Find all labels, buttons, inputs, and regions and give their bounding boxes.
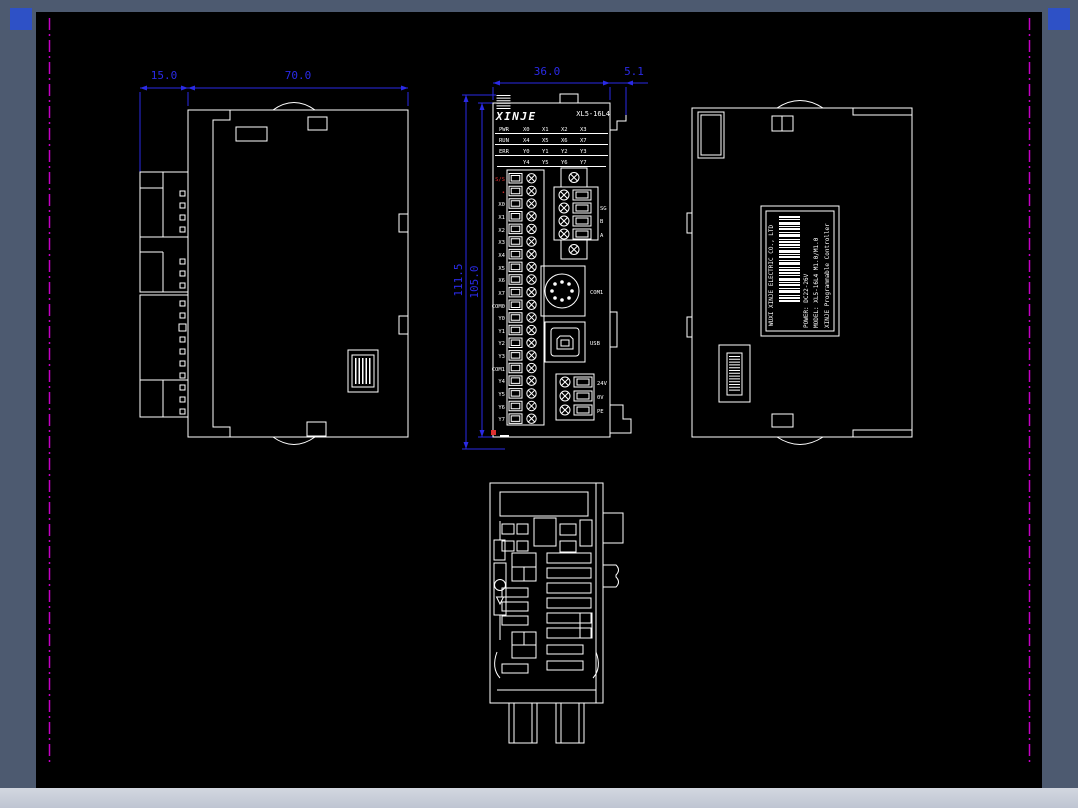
cad-viewer-window: 15.0 70.0 36.0 5.1 111.5 105.0: [0, 0, 1078, 808]
dim-70: 70.0: [285, 69, 312, 82]
terminal-row: [509, 401, 536, 411]
power-label: 24V: [597, 381, 608, 387]
dim-36: 36.0: [534, 65, 561, 78]
terminal-label: X4: [498, 253, 505, 259]
terminal-row: [509, 224, 536, 234]
right-side-view: XINJE Programmable Controller MODEL: XL5…: [687, 101, 912, 445]
led-label: Y0: [523, 149, 530, 155]
terminal-label: COM0: [492, 304, 505, 310]
led-label: X2: [561, 127, 568, 133]
mounting-feet: [509, 703, 584, 743]
usb-label: USB: [590, 341, 601, 347]
din-clip: [687, 213, 692, 233]
terminal-label: S/S: [495, 177, 505, 183]
terminal-label: X1: [498, 215, 505, 221]
terminal-label: X6: [498, 278, 505, 284]
terminal-label: X7: [498, 291, 505, 297]
terminal-row: [509, 212, 536, 222]
led-label: RUN: [499, 138, 509, 144]
nameplate-power: POWER: DC22-26V: [803, 273, 810, 328]
led-label: X5: [542, 138, 549, 144]
terminal-label: Y2: [498, 341, 505, 347]
din-clip: [687, 317, 692, 337]
terminal-label: X3: [498, 240, 505, 246]
led-label: PWR: [499, 127, 510, 133]
led-label: Y6: [561, 160, 568, 166]
terminal-label: Y7: [498, 417, 505, 423]
led-label: Y5: [542, 160, 549, 166]
din-clip: [603, 513, 623, 543]
terminal-row: [509, 363, 536, 373]
led-label: X1: [542, 127, 549, 133]
din-clip: [610, 312, 617, 347]
terminal-row: [509, 186, 536, 196]
expansion-port: [348, 350, 378, 392]
dimension-annotations: 15.0 70.0 36.0 5.1 111.5 105.0: [140, 65, 648, 449]
dim-5-1: 5.1: [624, 65, 644, 78]
terminal-row: [509, 237, 536, 247]
dim-15: 15.0: [151, 69, 178, 82]
sheet-border: [50, 18, 1030, 766]
led-label: Y4: [523, 160, 530, 166]
terminal-row: [509, 287, 536, 297]
power-label: 0V: [597, 395, 604, 401]
terminal-label: •: [502, 190, 505, 196]
terminal-row: [509, 174, 536, 184]
battery-cover: [698, 112, 724, 158]
terminal-row: [509, 300, 536, 310]
terminal-label: Y3: [498, 354, 505, 360]
warning-mark: [491, 430, 496, 435]
com1-port: COM1: [541, 266, 603, 316]
din-clip: [399, 214, 408, 232]
terminal-label: Y6: [498, 405, 505, 411]
nameplate-title: XINJE Programmable Controller: [824, 223, 831, 328]
side-terminal-blocks: [140, 172, 188, 417]
din-clip: [603, 565, 619, 587]
model-text: XL5-16L4: [576, 110, 610, 118]
led-label: X7: [580, 138, 587, 144]
terminal-label: Y1: [498, 329, 505, 335]
led-label: Y3: [580, 149, 587, 155]
terminal-row: [509, 351, 536, 361]
dim-105: 105.0: [468, 265, 481, 298]
rail-latch: [494, 521, 506, 640]
terminal-label: X5: [498, 266, 505, 272]
rs485-label: SG: [600, 206, 607, 212]
dim-111-5: 111.5: [452, 263, 465, 296]
nameplate-model: MODEL: XL5-16L4 M1.0/M1.0: [813, 237, 820, 328]
terminal-row: [509, 275, 536, 285]
rs485-terminal: SG B A: [554, 168, 607, 259]
terminal-label: Y0: [498, 316, 505, 322]
terminal-row: [509, 338, 536, 348]
bottom-view: [490, 483, 623, 743]
led-panel: PWR X0 X1 X2 X3 RUN X4 X5 X6 X7 ERR Y0 Y…: [495, 127, 608, 167]
din-clip: [610, 115, 626, 130]
led-label: X3: [580, 127, 587, 133]
terminal-label: Y4: [498, 379, 505, 385]
terminal-row: [509, 249, 536, 259]
terminal-row: [509, 389, 536, 399]
led-label: X6: [561, 138, 568, 144]
power-terminal: 24V 0V PE: [556, 374, 608, 420]
nameplate-company: WUXI XINJE ELECTRIC CO., LTD: [768, 224, 775, 326]
terminal-label: COM1: [492, 367, 505, 373]
terminal-row: [509, 199, 536, 209]
led-label: ERR: [499, 149, 510, 155]
io-terminal-strip: S/S • X0 X1 X2 X3 X4 X5 X6 X7 COM0 Y0 Y1…: [492, 170, 544, 425]
led-label: Y2: [561, 149, 568, 155]
terminal-label: X2: [498, 228, 505, 234]
terminal-row: [509, 376, 536, 386]
led-label: X4: [523, 138, 530, 144]
din-clip: [399, 316, 408, 334]
usb-port: USB: [545, 322, 601, 362]
com1-label: COM1: [590, 290, 603, 296]
power-label: PE: [597, 409, 604, 415]
led-label: Y1: [542, 149, 549, 155]
front-view: XINJE XL5-16L4 PWR X0 X1 X2 X3 RUN X4 X5…: [491, 94, 631, 437]
terminal-label: X0: [498, 202, 505, 208]
brand-logo: XINJE: [495, 110, 537, 123]
led-label: X0: [523, 127, 530, 133]
terminal-row: [509, 325, 536, 335]
terminal-label: Y5: [498, 392, 505, 398]
rs485-label: A: [600, 233, 604, 239]
din-clip: [610, 405, 631, 433]
nameplate: XINJE Programmable Controller MODEL: XL5…: [761, 206, 839, 336]
terminal-row: [509, 313, 536, 323]
expansion-port: [719, 345, 750, 402]
terminal-row: [509, 414, 536, 424]
side-view: [140, 103, 408, 445]
terminal-row: [509, 262, 536, 272]
rs485-label: B: [600, 219, 604, 225]
drawing-svg: 15.0 70.0 36.0 5.1 111.5 105.0: [0, 0, 1078, 808]
led-label: Y7: [580, 160, 587, 166]
